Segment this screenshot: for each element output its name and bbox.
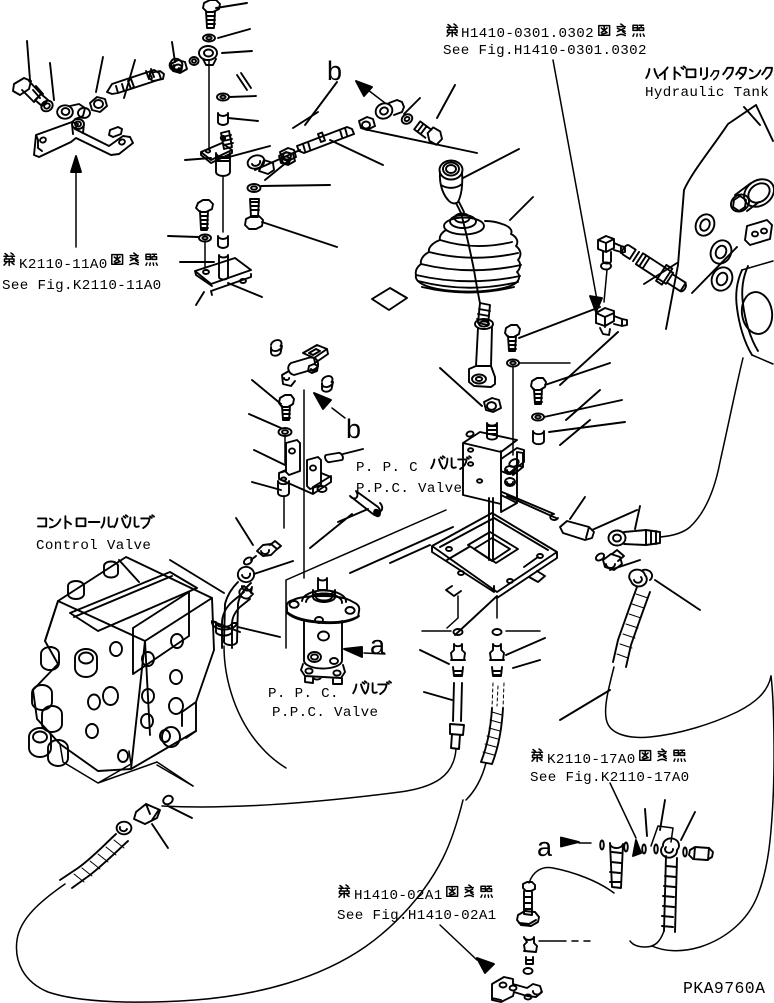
svg-text:a: a <box>370 630 386 660</box>
svg-text:See Fig.H1410-0301.0302: See Fig.H1410-0301.0302 <box>443 43 647 59</box>
svg-text:b: b <box>346 414 361 444</box>
svg-text:P.P.C. Valve: P.P.C. Valve <box>356 481 462 497</box>
svg-text:H1410-0301.0302: H1410-0301.0302 <box>461 26 594 42</box>
svg-text:Control Valve: Control Valve <box>36 538 151 554</box>
svg-text:P. P. C: P. P. C <box>356 460 418 476</box>
svg-text:H1410-02A1: H1410-02A1 <box>354 888 443 904</box>
svg-text:See Fig.K2110-11A0: See Fig.K2110-11A0 <box>2 278 162 294</box>
svg-text:K2110-11A0: K2110-11A0 <box>19 257 108 273</box>
svg-text:PKA9760A: PKA9760A <box>683 979 765 998</box>
svg-text:P. P. C.: P. P. C. <box>268 686 339 702</box>
svg-text:Hydraulic Tank: Hydraulic Tank <box>645 85 769 101</box>
svg-text:a: a <box>537 832 553 862</box>
svg-text:P.P.C. Valve: P.P.C. Valve <box>272 705 378 721</box>
svg-text:See Fig.H1410-02A1: See Fig.H1410-02A1 <box>337 908 497 924</box>
svg-text:b: b <box>327 56 342 86</box>
svg-text:K2110-17A0: K2110-17A0 <box>547 752 636 768</box>
